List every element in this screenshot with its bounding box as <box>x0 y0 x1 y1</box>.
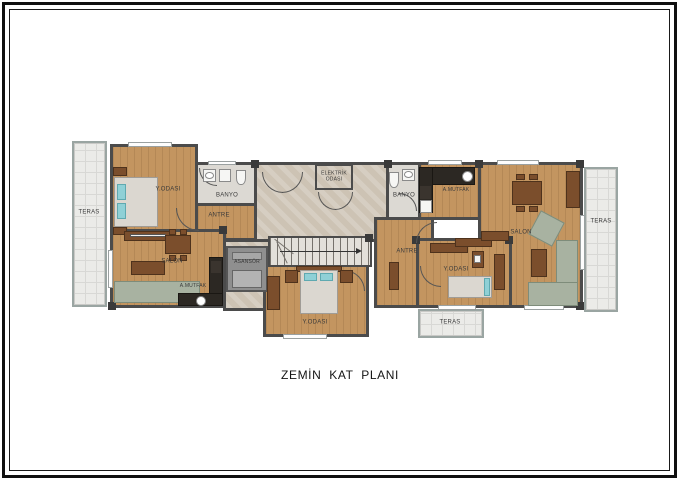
label-kitchen-left: A.MUTFAK <box>180 284 207 290</box>
sink-left <box>196 296 206 306</box>
stairs-arrow-head <box>356 248 362 254</box>
coffee-table-left <box>131 261 165 275</box>
stairs-direction-arrow <box>280 251 356 252</box>
dining-table-right <box>512 181 542 205</box>
elevator-cab <box>232 270 262 288</box>
label-banyo-left: BANYO <box>216 193 238 200</box>
nightstand-center-right <box>340 270 353 283</box>
column <box>475 160 483 168</box>
column <box>251 160 259 168</box>
window-bedroom-center-bottom <box>283 334 327 339</box>
wardrobe-bedroom-right-side <box>494 254 505 290</box>
label-salon-left: SALON <box>161 259 182 266</box>
bed-left-pillow-1 <box>117 184 126 200</box>
coffee-table-right <box>531 249 547 277</box>
window-salon-left-side <box>108 250 113 288</box>
label-elektrik: ELEKTRİK ODASI <box>317 171 351 183</box>
window-bedroom-right-bottom <box>438 305 476 310</box>
sink-banyo-right-bowl <box>404 171 413 178</box>
bed-right-pillow <box>484 278 490 296</box>
wardrobe-center <box>267 276 280 310</box>
label-bedroom-center: Y.ODASI <box>303 320 328 327</box>
toilet-banyo-left <box>236 170 246 185</box>
label-banyo-right: BANYO <box>393 193 415 200</box>
sofa-right-horizontal <box>528 282 578 306</box>
label-teras-right: TERAS <box>590 219 611 226</box>
column <box>576 160 584 168</box>
window-banyo-left-top <box>208 161 236 165</box>
label-teras-left: TERAS <box>78 210 99 217</box>
wardrobe-salon-right-top <box>566 171 580 208</box>
stove-left <box>211 261 221 273</box>
column <box>365 234 373 242</box>
sideboard-salon-right <box>481 231 509 241</box>
column <box>108 302 116 310</box>
label-asansor: ASANSÖR <box>234 260 260 266</box>
label-salon-right: SALON <box>510 230 531 237</box>
dining-chair <box>169 229 176 235</box>
bed-left-pillow-2 <box>117 203 126 219</box>
label-antre-right: ANTRE <box>396 249 417 256</box>
drawing-sheet: TERAS Y.ODASI BANYO ANTRE SALON A.MUTFAK… <box>0 0 679 480</box>
terrace-right <box>584 167 618 312</box>
window-kitchen-right-top <box>428 160 462 165</box>
label-bedroom-right: Y.ODASI <box>444 267 469 274</box>
stove-right <box>420 186 431 199</box>
sink-banyo-left-bowl <box>205 172 214 179</box>
desk-paper-right <box>474 255 481 263</box>
fridge-right <box>420 200 432 213</box>
bed-center-pillow-2 <box>320 273 333 281</box>
nightstand-center-left <box>285 270 298 283</box>
window-bedroom-left-top <box>128 142 172 147</box>
plan-title: ZEMİN KAT PLANI <box>240 368 440 382</box>
dining-chair <box>180 229 187 235</box>
dining-chair <box>516 206 525 212</box>
dining-chair <box>529 174 538 180</box>
label-kitchen-right: A.MUTFAK <box>443 188 470 194</box>
dining-chair <box>516 174 525 180</box>
window-salon-right-top <box>497 160 539 165</box>
label-bedroom-left: Y.ODASI <box>156 187 181 194</box>
tv-left <box>130 234 166 237</box>
nightstand-left-top <box>113 167 127 176</box>
cabinet-antre-right <box>389 262 399 290</box>
sink-right <box>462 171 473 182</box>
label-teras-bottom: TERAS <box>439 320 460 327</box>
bed-center-pillow-1 <box>304 273 317 281</box>
toilet-banyo-right <box>389 172 399 188</box>
label-antre-left: ANTRE <box>208 213 229 220</box>
column <box>384 160 392 168</box>
column <box>219 226 227 234</box>
window-salon-right-terrace-door <box>580 215 585 270</box>
dining-table-left <box>165 235 191 254</box>
washer-banyo-left <box>219 169 231 182</box>
terrace-left <box>72 141 107 307</box>
floor-plan: TERAS Y.ODASI BANYO ANTRE SALON A.MUTFAK… <box>0 0 679 480</box>
dining-chair <box>529 206 538 212</box>
